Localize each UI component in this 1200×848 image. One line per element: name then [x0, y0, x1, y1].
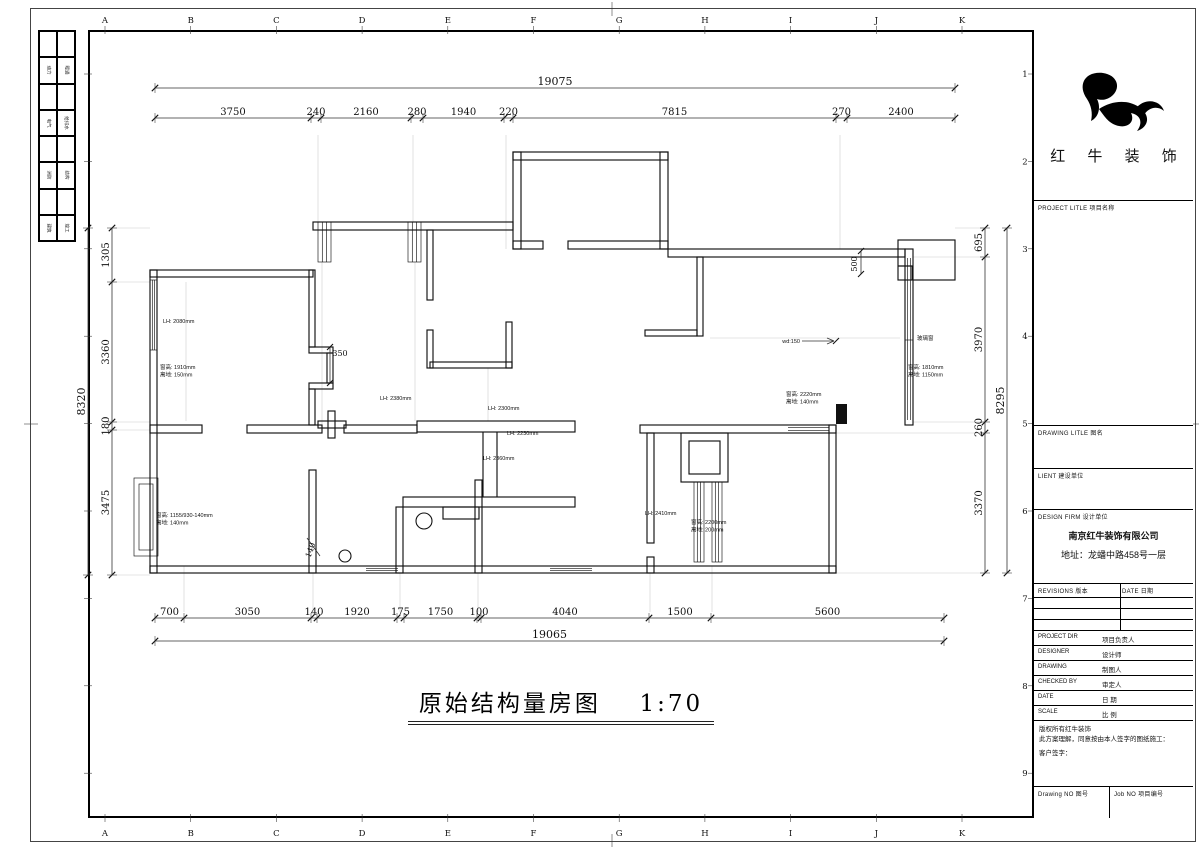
plan-annotation: 窗高: 2200mm离地: 200mm: [691, 518, 727, 534]
grid-letter-top: A: [101, 16, 109, 26]
plan-annotation: 350: [332, 349, 347, 358]
grid-number-right: 3: [1022, 245, 1027, 255]
dimension-label: 2400: [888, 107, 913, 118]
company-logo-icon: [1059, 65, 1169, 137]
drawing-scale-text: 1:70: [639, 691, 703, 717]
grid-letter-top: H: [701, 16, 708, 26]
titleblock-client-section: LIENT 建设单位: [1032, 468, 1193, 509]
grid-letter-top: J: [874, 16, 879, 26]
dimension-label: 2160: [353, 107, 378, 118]
titleblock-number-section: Drawing NO 图号 Job NO 项目编号: [1032, 786, 1193, 818]
dimension-total-label: 8295: [994, 387, 1007, 415]
grid-letter-bottom: J: [874, 829, 879, 839]
drawing-sheet: 动力暖通电气给排水消防结构建筑竣工: [0, 0, 1200, 848]
date-label-en: DATE: [1034, 691, 1100, 705]
project-dir-label-zh: 项目负责人: [1100, 631, 1135, 645]
dimension-label: 695: [974, 233, 985, 252]
company-name: 红 牛 装 饰: [1041, 145, 1186, 166]
dimension-label: 1750: [428, 607, 453, 618]
titleblock-scale-row: SCALE 比 例: [1032, 705, 1193, 720]
grid-letter-bottom: I: [789, 829, 792, 839]
dimension-label: 1940: [451, 107, 476, 118]
dimension-label: 180: [101, 416, 112, 435]
grid-letter-top: C: [273, 16, 280, 26]
grid-letter-top: D: [359, 16, 366, 26]
designer-label-en: DESIGNER: [1034, 646, 1100, 660]
scale-label-en: SCALE: [1034, 706, 1100, 720]
grid-letter-bottom: B: [188, 829, 194, 839]
dimension-label: 1500: [667, 607, 692, 618]
drawing-title-label: DRAWING LITLE 图名: [1034, 426, 1193, 437]
grid-number-right: 2: [1022, 157, 1027, 167]
floor-plan-walls: [150, 152, 955, 573]
titleblock-project-dir-row: PROJECT DIR 项目负责人: [1032, 630, 1193, 645]
dimension-label: 7815: [662, 107, 687, 118]
grid-letter-bottom: K: [959, 829, 966, 839]
grid-letter-top: F: [531, 16, 537, 26]
grid-number-right: 8: [1022, 682, 1027, 692]
grid-letter-top: G: [616, 16, 623, 26]
revisions-label: REVISIONS 版本: [1034, 584, 1118, 595]
design-firm-label: DESIGN FIRM 设计单位: [1034, 510, 1193, 521]
titleblock-revisions-section: REVISIONS 版本 DATE 日期: [1032, 583, 1193, 630]
dimension-label: 700: [160, 607, 179, 618]
dimension-total-label: 8320: [75, 388, 88, 416]
titleblock-logo-section: 红 牛 装 饰: [1032, 30, 1193, 200]
plan-annotation: LH: 2360mm: [483, 456, 515, 462]
checkedby-label-en: CHECKED BY: [1034, 676, 1100, 690]
plan-annotation: LH: 2380mm: [380, 396, 412, 402]
grid-letter-bottom: C: [273, 829, 280, 839]
dimension-label: 3750: [220, 107, 245, 118]
dimension-label: 3370: [974, 490, 985, 515]
design-firm-address: 地址：龙蟠中路458号一层: [1034, 548, 1193, 561]
guide-lines: [112, 135, 985, 612]
design-firm-name: 南京红牛装饰有限公司: [1034, 529, 1193, 542]
dimension-label: 3050: [235, 607, 260, 618]
designer-label-zh: 设计师: [1100, 646, 1122, 660]
titleblock-drawing-title-section: DRAWING LITLE 图名: [1032, 425, 1193, 468]
dimension-label: 140: [304, 607, 323, 618]
copyright-line-1: 版权所有红牛装饰: [1039, 725, 1193, 735]
titleblock-checkedby-row: CHECKED BY 审定人: [1032, 675, 1193, 690]
inner-dimension-marks: [307, 248, 864, 556]
dimension-label: 3970: [974, 327, 985, 352]
titleblock-drawing-row: DRAWING 制图人: [1032, 660, 1193, 675]
revisions-date-label: DATE 日期: [1118, 584, 1153, 595]
date-label-zh: 日 期: [1100, 691, 1117, 705]
checkedby-label-zh: 审定人: [1100, 676, 1122, 690]
plumbing-fixtures: [339, 513, 432, 562]
grid-letter-bottom: A: [101, 829, 109, 839]
grid-letter-bottom: F: [531, 829, 537, 839]
dimension-label: 270: [832, 107, 851, 118]
plan-annotation: 500: [850, 256, 859, 271]
drawing-no-label: Drawing NO 图号: [1034, 787, 1110, 818]
grid-letter-bottom: G: [616, 829, 623, 839]
dimension-label: 280: [407, 107, 426, 118]
grid-number-right: 5: [1022, 420, 1027, 430]
dimension-label: 1305: [101, 242, 112, 267]
dimension-label: 260: [974, 418, 985, 437]
drawing-title-text: 原始结构量房图: [419, 691, 601, 717]
plan-annotation: LH: 2230mm: [507, 431, 539, 437]
grid-letter-top: B: [188, 16, 194, 26]
titleblock-copyright-section: 版权所有红牛装饰 此方案理解，同意按由本人签字的图纸施工： 客户签字：: [1032, 720, 1193, 786]
plan-annotation: 窗高: 2220mm离地: 140mm: [786, 390, 822, 406]
dimension-label: 220: [499, 107, 518, 118]
plan-annotation: LH: 2080mm: [163, 319, 195, 325]
grid-letter-bottom: H: [701, 829, 708, 839]
plan-annotation: LH: 2410mm: [645, 511, 677, 517]
dimension-label: 3360: [101, 339, 112, 364]
scale-label-zh: 比 例: [1100, 706, 1117, 720]
plan-annotation: 窗高: 1810mm离地: 1150mm: [908, 363, 944, 379]
titleblock-project-section: PROJECT LITLE 项目名称: [1032, 200, 1193, 425]
plan-annotation: LH: 2300mm: [488, 406, 520, 412]
dimension-lines: 1907537502402160280194022078152702400700…: [75, 75, 1012, 646]
project-dir-label-en: PROJECT DIR: [1034, 631, 1100, 645]
plan-annotation: 玻璃窗: [917, 334, 934, 342]
client-label: LIENT 建设单位: [1034, 469, 1193, 480]
project-title-label: PROJECT LITLE 项目名称: [1034, 201, 1193, 212]
titleblock-design-firm-section: DESIGN FIRM 设计单位 南京红牛装饰有限公司 地址：龙蟠中路458号一…: [1032, 509, 1193, 583]
grid-letter-bottom: D: [359, 829, 366, 839]
grid-number-right: 9: [1022, 769, 1027, 779]
grid-number-right: 1: [1022, 70, 1027, 80]
grid-letter-top: K: [959, 16, 966, 26]
grid-letter-top: I: [789, 16, 792, 26]
dimension-label: 240: [306, 107, 325, 118]
titleblock-designer-row: DESIGNER 设计师: [1032, 645, 1193, 660]
dimension-total-label: 19065: [532, 628, 567, 641]
dimension-label: 3475: [101, 490, 112, 515]
dimension-label: 5600: [815, 607, 840, 618]
client-signature-label: 客户签字：: [1039, 749, 1193, 759]
dimension-total-label: 19075: [538, 75, 573, 88]
grid-letter-top: E: [445, 16, 451, 26]
grid-number-right: 7: [1022, 594, 1027, 604]
drawing-label-zh: 制图人: [1100, 661, 1122, 675]
dimension-label: 4040: [552, 607, 577, 618]
drawing-label-en: DRAWING: [1034, 661, 1100, 675]
grid-number-right: 6: [1022, 507, 1027, 517]
grid-number-right: 4: [1022, 332, 1027, 342]
job-no-label: Job NO 项目编号: [1110, 787, 1193, 818]
plan-annotations: LH: 2080mm窗高: 1910mm离地: 150mm350LH: 2380…: [156, 256, 944, 559]
plan-annotation: 窗高: 1910mm离地: 150mm: [160, 363, 196, 379]
dimension-label: 100: [469, 607, 488, 618]
dimension-label: 175: [391, 607, 410, 618]
dimension-label: 1920: [344, 607, 369, 618]
drawing-title: 原始结构量房图 1:70: [408, 684, 714, 725]
plan-annotation: wd:150: [781, 339, 800, 345]
titleblock-date-row: DATE 日 期: [1032, 690, 1193, 705]
grid-letter-bottom: E: [445, 829, 451, 839]
plan-annotation: 窗高: 1155/930-140mm离地: 140mm: [156, 511, 213, 527]
copyright-line-2: 此方案理解，同意按由本人签字的图纸施工：: [1039, 735, 1193, 745]
